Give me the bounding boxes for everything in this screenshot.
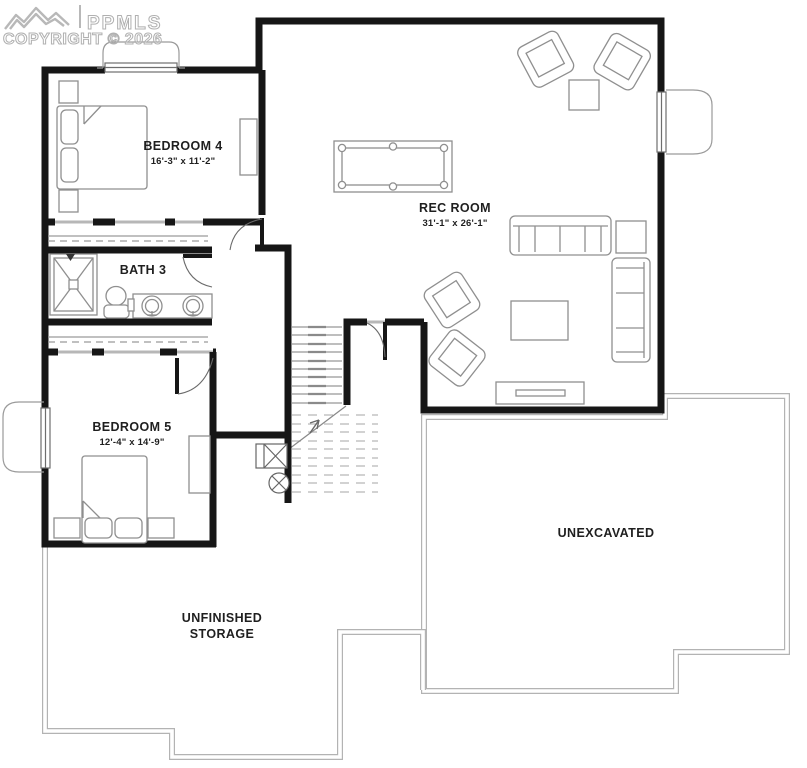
stair-door-arc xyxy=(367,323,385,357)
bedroom4-dims: 16'-3" x 11'-2" xyxy=(151,156,216,167)
sofa-horizontal xyxy=(510,216,611,255)
bedroom4-nightstand-top xyxy=(59,81,78,103)
armchair-top-left xyxy=(515,29,576,90)
armchair-top-right xyxy=(591,31,652,92)
foundation-outlines xyxy=(45,396,787,757)
stair-tread-nosings xyxy=(308,327,326,403)
unexcavated-label: UNEXCAVATED xyxy=(558,526,655,540)
side-table-top xyxy=(569,80,599,110)
rec-room-dims: 31'-1" x 26'-1" xyxy=(422,218,487,229)
stair-overhead-dashed xyxy=(292,415,378,492)
sofa-vertical xyxy=(612,258,650,362)
rec-room-window-well xyxy=(666,90,712,154)
bedroom5-label: BEDROOM 5 xyxy=(92,420,171,434)
water-heater xyxy=(269,473,289,493)
shower xyxy=(50,254,97,315)
rec-room-furniture xyxy=(334,29,653,404)
stairs xyxy=(289,327,378,492)
mountains-logo-icon xyxy=(5,5,80,29)
coffee-table xyxy=(511,301,568,340)
bedroom4-nightstand-bottom xyxy=(59,190,78,212)
stair-direction-arrow-icon xyxy=(310,420,319,433)
furnace xyxy=(256,444,287,468)
bedroom5-furniture xyxy=(54,436,210,543)
armchair-mid-left xyxy=(422,270,483,331)
bedroom5-door-arc xyxy=(178,358,213,394)
unexcavated-outline-inner xyxy=(424,396,787,691)
storage-label-line2: STORAGE xyxy=(190,627,254,641)
end-table xyxy=(616,221,646,253)
floor-plan-page: BEDROOM 4 16'-3" x 11'-2" REC ROOM 31'-1… xyxy=(0,0,807,768)
bedroom5-dims: 12'-4" x 14'-9" xyxy=(99,437,164,448)
bedroom4-dresser xyxy=(240,119,257,175)
bath3-door-arc xyxy=(183,257,212,287)
storage-label-line1: UNFINISHED xyxy=(182,611,262,625)
bedroom5-window xyxy=(41,408,50,468)
bedroom4-label: BEDROOM 4 xyxy=(143,139,222,153)
bedroom4-pillow-1 xyxy=(61,110,78,144)
floor-plan: BEDROOM 4 16'-3" x 11'-2" REC ROOM 31'-1… xyxy=(0,0,807,768)
bedroom5-dresser xyxy=(189,436,210,493)
utility-equipment xyxy=(256,444,289,493)
pool-table xyxy=(334,141,452,192)
armchair-mid-bottom xyxy=(426,327,488,389)
storage-outline-inner xyxy=(45,546,423,757)
rec-room-window xyxy=(657,92,666,152)
watermark-copyright: COPYRIGHT © 2026 xyxy=(3,31,162,48)
bedroom5-pillow-1 xyxy=(85,518,112,538)
stair-treads xyxy=(292,327,342,403)
bath3-label: BATH 3 xyxy=(120,263,167,277)
bedroom5-nightstand-right xyxy=(148,518,174,538)
bedroom5-pillow-2 xyxy=(115,518,142,538)
vanity-soap-ledge xyxy=(128,299,134,311)
bedroom5-nightstand-left xyxy=(54,518,80,538)
unexcavated-outline xyxy=(424,396,787,691)
bedroom4-window xyxy=(105,63,177,72)
vanity-double-sink xyxy=(128,294,212,318)
toilet xyxy=(104,287,129,319)
watermark: PPMLS COPYRIGHT © 2026 xyxy=(3,5,162,48)
bedroom4-pillow-2 xyxy=(61,148,78,182)
media-console xyxy=(496,382,584,404)
rec-room-label: REC ROOM xyxy=(419,201,491,215)
storage-outline xyxy=(45,546,423,757)
bedroom5-window-well xyxy=(3,402,44,472)
wall-rec-stair-top-b-and-stair-right xyxy=(347,322,367,405)
